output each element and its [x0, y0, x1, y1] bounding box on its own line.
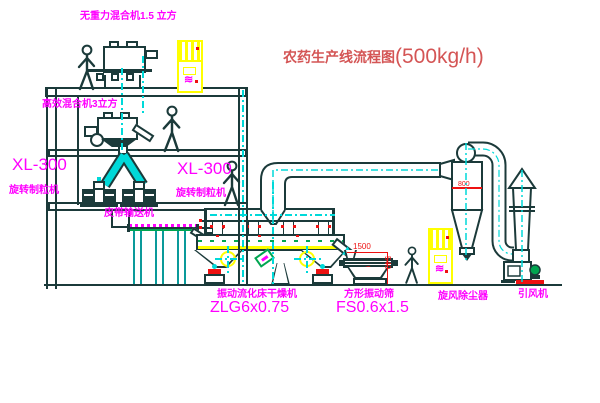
dryer-fitting: [258, 235, 261, 237]
mixer-leg: [139, 75, 141, 88]
indicator-dot: [196, 47, 199, 50]
nameplate-text-mark: [261, 255, 268, 261]
granulator-left: [80, 181, 118, 207]
centerline-funnel: [272, 182, 274, 285]
label-granulator-left-name: 旋转制粒机: [9, 186, 59, 196]
dryer-top-port: [212, 221, 223, 235]
building-column-right-inner: [238, 87, 240, 285]
granulator-inlet-cap: [137, 177, 141, 181]
mixer-top-port: [109, 41, 119, 48]
centerline-right-column: [242, 90, 244, 285]
control-cabinet-lower: ≋: [428, 228, 453, 284]
exhaust-duct: [255, 158, 460, 228]
ground-line: [44, 284, 562, 286]
dryer-body-dashes: [198, 240, 343, 242]
centerline-mixer: [121, 68, 123, 152]
label-sieve-model: FS0.6x1.5: [336, 300, 409, 316]
dryer-foot-base: [312, 274, 333, 284]
dimension-cyclone: 800: [458, 181, 470, 188]
drawing-title: 农药生产线流程图(500kg/h): [283, 45, 484, 69]
title-capacity: (500kg/h): [395, 45, 484, 69]
label-top-mixer: 无重力混合机1.5 立方: [80, 12, 177, 22]
indicator-dot: [445, 270, 448, 273]
cabinet-display-mark: ≋: [435, 264, 444, 275]
granulator-inlet: [133, 181, 145, 190]
dryer-fitting: [216, 235, 219, 237]
granulator-base: [120, 204, 158, 207]
cabinet-panel: [434, 255, 447, 263]
dryer-foot-base: [204, 274, 225, 284]
centerline-pipe: [142, 56, 144, 114]
control-cabinet-upper: ≋: [177, 40, 203, 93]
granulator-right: [120, 181, 158, 207]
mixer-top-port: [126, 41, 138, 48]
conveyor-leg: [177, 231, 186, 284]
granulator-detail: [124, 194, 133, 196]
indicator-dot: [195, 80, 198, 83]
crosshair-line: [306, 246, 308, 273]
granulator-inlet-cap: [97, 177, 101, 181]
cabinet-display-mark: ≋: [184, 75, 193, 86]
mixer2-pulley: [90, 133, 104, 147]
centerline-hood: [210, 214, 335, 216]
conveyor-end-cap: [127, 224, 130, 232]
granulator-block: [103, 189, 116, 203]
flange-gasket: [199, 219, 202, 222]
granulator-inlet: [93, 181, 105, 190]
dryer-fitting: [296, 235, 299, 237]
mixer2-top-port: [103, 112, 113, 119]
port-gasket: [210, 225, 213, 228]
sieve-side-tab: [339, 260, 344, 266]
mixer-leg: [104, 75, 106, 88]
dimension-sieve-length: 1500: [353, 243, 371, 251]
cabinet-stripes: [179, 42, 201, 62]
cabinet-stripes: [430, 230, 451, 250]
label-granulator-mid-name: 旋转制粒机: [176, 189, 226, 199]
granulator-block: [82, 189, 95, 203]
granulator-block: [143, 189, 156, 203]
building-column-left-wall: [77, 95, 79, 205]
granulator-detail: [145, 194, 154, 196]
granulator-detail: [84, 194, 93, 196]
cad-drawing-canvas: ≋: [0, 0, 600, 403]
cyclone-fan-assembly: 800: [438, 140, 564, 286]
person-figure-ground: [403, 245, 421, 287]
label-belt-conveyor: 皮带输送机: [104, 209, 154, 219]
label-cyclone: 旋风除尘器: [438, 292, 488, 302]
mixer-valve: [111, 73, 119, 81]
dryer-end-plate: [204, 208, 207, 236]
port-gasket: [222, 225, 225, 228]
conveyor-leg: [155, 231, 164, 284]
granulator-block: [122, 189, 135, 203]
granulator-base: [80, 204, 118, 207]
person-figure-top-floor: [76, 45, 98, 92]
label-dryer-model: ZLG6x0.75: [210, 300, 289, 316]
flange-gasket: [199, 226, 202, 229]
label-floor2-mixer: 高效混合机3立方: [42, 100, 118, 110]
crosshair-line: [227, 246, 229, 273]
sieve-side-tab: [393, 260, 398, 266]
mixer-valve: [126, 73, 134, 81]
indicator-dot: [446, 236, 449, 239]
dimension-sieve-height: 540: [383, 256, 391, 269]
conveyor-leg: [133, 231, 142, 284]
person-figure-second-floor: [160, 106, 184, 154]
label-granulator-mid-model: XL-300: [177, 160, 232, 177]
granulator-detail: [105, 194, 114, 196]
building-column-right-outer: [246, 87, 248, 285]
label-granulator-left-model: XL-300: [12, 156, 67, 173]
dryer-yellow-stripe: [198, 246, 343, 249]
title-chinese: 农药生产线流程图: [283, 47, 395, 67]
dimension-line-horizontal: [347, 252, 388, 253]
mixer-outlet: [145, 50, 158, 59]
label-fan: 引风机: [518, 290, 548, 300]
